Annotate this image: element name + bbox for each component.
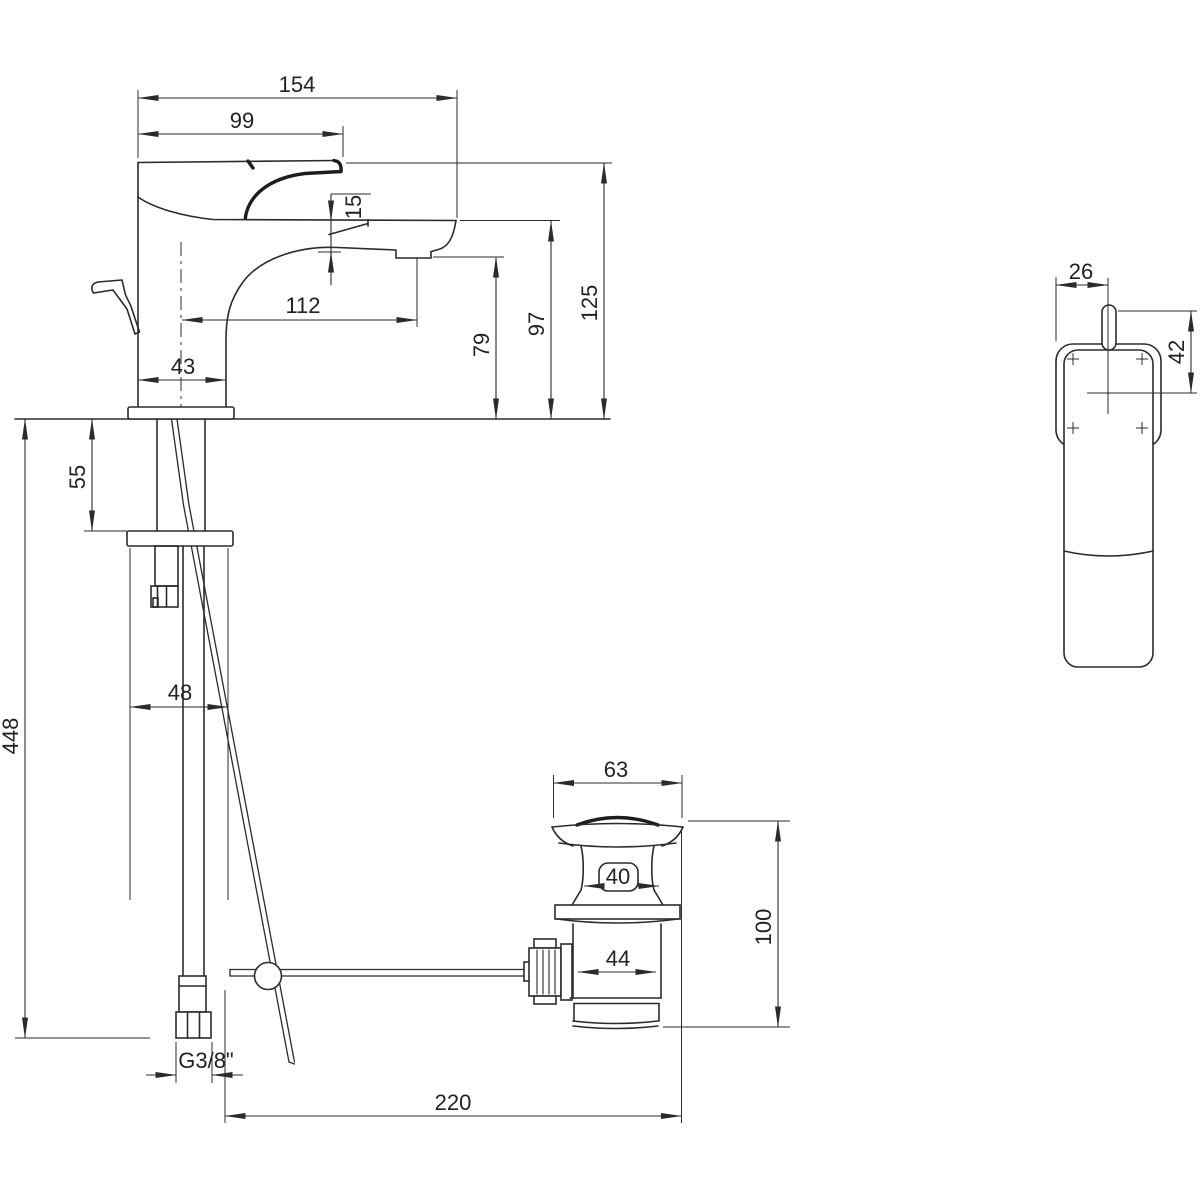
dim-99-label: 99 bbox=[230, 108, 254, 133]
dim-43-label: 43 bbox=[171, 354, 195, 379]
hose-ferrule bbox=[179, 976, 206, 1012]
dim-hose-length: 448 bbox=[0, 419, 150, 1038]
dim-spout-lip: 15 bbox=[318, 194, 371, 285]
drain-side-collar bbox=[561, 944, 572, 1000]
dim-100-label: 100 bbox=[751, 909, 776, 946]
popup-waste-drain bbox=[524, 818, 683, 1029]
base-plate bbox=[128, 407, 234, 419]
dim-220-label: 220 bbox=[435, 1090, 472, 1115]
dim-448-label: 448 bbox=[0, 718, 23, 755]
connector-nut bbox=[151, 586, 178, 607]
dim-112-label: 112 bbox=[285, 293, 320, 318]
dim-plug-diameter: 40 bbox=[584, 863, 659, 891]
handle-top-line bbox=[138, 161, 334, 163]
dim-spout-top-height: 97 bbox=[460, 221, 560, 420]
hose-hex-nut bbox=[176, 1012, 211, 1038]
knurl-top bbox=[534, 939, 556, 948]
dim-overall-projection: 154 bbox=[138, 72, 457, 218]
drain-mount-ring bbox=[555, 905, 680, 919]
technical-drawing-page: 154 99 15 112 43 bbox=[0, 0, 1200, 1200]
dim-centre-offset: 26 bbox=[1056, 259, 1108, 341]
under-counter-assembly bbox=[127, 419, 524, 1064]
dim-44-label: 44 bbox=[606, 946, 630, 971]
drain-tail-rim2 bbox=[573, 1026, 658, 1029]
dim-42-label: 42 bbox=[1164, 340, 1189, 364]
knurl-nut bbox=[529, 948, 561, 996]
spout-underside bbox=[226, 247, 396, 407]
faucet-side-view bbox=[15, 161, 610, 420]
dim-body-diameter: 44 bbox=[578, 946, 656, 972]
drain-flange-top bbox=[552, 824, 683, 828]
spout-tip-face bbox=[432, 221, 457, 252]
hose-connector bbox=[155, 546, 178, 586]
faucet-dimension-drawing: 154 99 15 112 43 bbox=[0, 0, 1200, 1200]
dim-97-label: 97 bbox=[524, 312, 549, 336]
handle-underside-curve bbox=[245, 172, 341, 219]
dim-body-depth: 43 bbox=[138, 354, 226, 380]
dim-125-label: 125 bbox=[577, 285, 602, 322]
dim-flange-diameter: 63 bbox=[554, 757, 683, 818]
handle-tip bbox=[334, 161, 341, 172]
dim-63-label: 63 bbox=[604, 757, 628, 782]
dim-79-label: 79 bbox=[469, 333, 494, 357]
dim-overall-height: 125 bbox=[346, 163, 612, 419]
dim-26-label: 26 bbox=[1069, 259, 1093, 284]
dim-154-label: 154 bbox=[279, 72, 316, 97]
dim-spout-reach: 112 bbox=[182, 258, 417, 327]
dim-handle-projection: 99 bbox=[138, 108, 343, 157]
dim-hose-thread: G3/8" bbox=[146, 1042, 243, 1083]
drain-flange-rim bbox=[559, 843, 676, 847]
dim-waste-height: 100 bbox=[663, 821, 790, 1027]
pivot-ball bbox=[255, 963, 282, 990]
popup-lever bbox=[92, 280, 140, 334]
faucet-top-view bbox=[1056, 278, 1197, 667]
drain-neck-left bbox=[581, 846, 583, 890]
knurl-bottom bbox=[534, 996, 556, 1004]
mounting-plate bbox=[127, 531, 233, 546]
drain-neck-right bbox=[652, 846, 654, 890]
dim-40-label: 40 bbox=[606, 864, 630, 889]
body-shoulder-deck bbox=[138, 197, 456, 221]
drain-neck-flare bbox=[572, 890, 663, 905]
dim-55-label: 55 bbox=[65, 465, 90, 489]
spout-inner-edge bbox=[329, 220, 368, 235]
popup-rod-end bbox=[289, 1062, 295, 1064]
dimension-annotations: 154 99 15 112 43 bbox=[0, 72, 1197, 1123]
aerator bbox=[396, 251, 431, 258]
dim-15-label: 15 bbox=[341, 195, 366, 219]
drain-tail-rim1 bbox=[573, 1021, 658, 1024]
dim-shank-clearance: 55 bbox=[65, 419, 127, 531]
dim-aerator-height: 79 bbox=[433, 257, 504, 419]
connector-nut-notch bbox=[153, 598, 158, 607]
dim-48-label: 48 bbox=[168, 680, 192, 705]
top-view-lever bbox=[1102, 305, 1116, 350]
dim-bracket-width: 48 bbox=[130, 548, 228, 900]
